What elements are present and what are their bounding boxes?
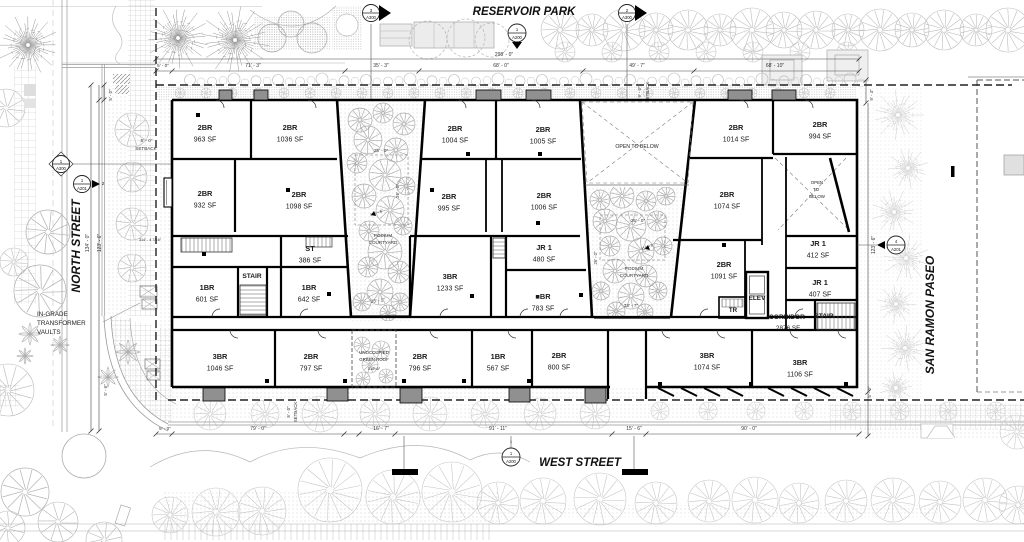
svg-text:25′ - 0″: 25′ - 0″	[631, 218, 646, 223]
svg-text:PODIUM: PODIUM	[374, 233, 393, 238]
svg-text:963 SF: 963 SF	[194, 137, 217, 144]
svg-text:797 SF: 797 SF	[300, 366, 323, 373]
svg-text:2BR: 2BR	[537, 191, 552, 200]
svg-text:1BR: 1BR	[200, 283, 215, 292]
svg-text:5′ - 0″: 5′ - 0″	[157, 63, 169, 68]
svg-text:A200: A200	[506, 459, 516, 464]
svg-text:15′ - 6″: 15′ - 6″	[626, 426, 642, 432]
svg-text:9′ - 4″: 9′ - 4″	[869, 89, 874, 101]
svg-text:5′ - 0″: 5′ - 0″	[867, 386, 872, 398]
svg-text:WEST STREET: WEST STREET	[539, 457, 622, 469]
svg-text:OPEN: OPEN	[811, 180, 823, 185]
svg-text:2BR: 2BR	[536, 125, 551, 134]
svg-text:RESERVOIR PARK: RESERVOIR PARK	[473, 6, 576, 18]
svg-text:TO: TO	[813, 187, 820, 192]
svg-text:1006 SF: 1006 SF	[531, 205, 557, 212]
svg-text:123′ - 6″: 123′ - 6″	[97, 234, 103, 253]
svg-text:SETBACK: SETBACK	[135, 146, 157, 151]
svg-text:3BR: 3BR	[443, 272, 458, 281]
svg-text:9′ - 0″: 9′ - 0″	[637, 86, 642, 98]
svg-text:NORTH STREET: NORTH STREET	[69, 198, 83, 293]
svg-text:79′ - 0″: 79′ - 0″	[250, 426, 266, 432]
svg-text:601 SF: 601 SF	[196, 297, 219, 304]
svg-text:2BR: 2BR	[304, 352, 319, 361]
svg-text:1014 SF: 1014 SF	[723, 137, 749, 144]
svg-text:567 SF: 567 SF	[487, 366, 510, 373]
svg-text:A300: A300	[366, 15, 376, 20]
svg-text:2BR: 2BR	[717, 260, 732, 269]
svg-text:25′ - 0″: 25′ - 0″	[374, 148, 389, 153]
svg-text:1004 SF: 1004 SF	[442, 138, 468, 145]
svg-text:JR 1: JR 1	[812, 278, 828, 287]
svg-text:314′ - 4 7/16″: 314′ - 4 7/16″	[139, 238, 162, 242]
svg-text:994 SF: 994 SF	[809, 134, 832, 141]
svg-text:1046 SF: 1046 SF	[207, 366, 233, 373]
svg-text:2: 2	[102, 181, 105, 186]
svg-text:2BR: 2BR	[413, 352, 428, 361]
svg-text:VAULTS: VAULTS	[37, 329, 61, 336]
svg-text:26′ - 0″: 26′ - 0″	[395, 184, 400, 198]
svg-text:COURTYARD: COURTYARD	[620, 273, 649, 278]
svg-text:90′ - 0″: 90′ - 0″	[741, 426, 757, 432]
svg-text:412 SF: 412 SF	[807, 253, 830, 260]
svg-text:68′ - 10″: 68′ - 10″	[766, 63, 785, 69]
svg-text:2BR: 2BR	[198, 123, 213, 132]
svg-text:1BR: 1BR	[302, 283, 317, 292]
svg-text:COURTYARD: COURTYARD	[369, 240, 398, 245]
svg-text:UNOCCUPIED: UNOCCUPIED	[359, 350, 389, 355]
svg-text:2BR: 2BR	[198, 189, 213, 198]
svg-text:2BR: 2BR	[729, 123, 744, 132]
svg-text:33′ - 7″: 33′ - 7″	[624, 303, 639, 308]
svg-text:796 SF: 796 SF	[409, 366, 432, 373]
svg-text:BELOW: BELOW	[809, 194, 826, 199]
svg-text:3BR: 3BR	[793, 358, 808, 367]
svg-text:1036 SF: 1036 SF	[277, 137, 303, 144]
svg-text:5′ - 0″: 5′ - 0″	[286, 406, 291, 418]
svg-text:1074 SF: 1074 SF	[694, 365, 720, 372]
svg-text:2BR: 2BR	[720, 190, 735, 199]
svg-text:26′ - 0″: 26′ - 0″	[593, 251, 598, 264]
svg-text:CORRIDOR: CORRIDOR	[769, 314, 805, 321]
svg-text:TRANSFORMER: TRANSFORMER	[37, 320, 86, 327]
svg-text:783 SF: 783 SF	[532, 306, 555, 313]
svg-text:5′ - 0″: 5′ - 0″	[108, 89, 113, 101]
svg-text:ELEV: ELEV	[749, 295, 766, 302]
svg-text:407 SF: 407 SF	[809, 292, 832, 299]
svg-text:1098 SF: 1098 SF	[286, 204, 312, 211]
svg-text:16′ - 7″: 16′ - 7″	[373, 426, 389, 432]
svg-text:2BR: 2BR	[552, 351, 567, 360]
svg-text:1BR: 1BR	[491, 352, 506, 361]
svg-text:2876 SF: 2876 SF	[776, 325, 800, 332]
svg-text:480 SF: 480 SF	[533, 257, 556, 264]
svg-text:1074 SF: 1074 SF	[714, 204, 740, 211]
svg-text:134′ - 0″: 134′ - 0″	[85, 234, 91, 253]
svg-text:3BR: 3BR	[213, 352, 228, 361]
svg-text:■BR: ■BR	[535, 292, 551, 301]
svg-text:2BR: 2BR	[283, 123, 298, 132]
svg-text:5′ - 0″: 5′ - 0″	[159, 426, 171, 431]
svg-text:3BR: 3BR	[700, 351, 715, 360]
svg-text:IN-GRADE: IN-GRADE	[37, 311, 68, 318]
svg-text:2BR: 2BR	[813, 120, 828, 129]
svg-text:2BR: 2BR	[292, 190, 307, 199]
svg-text:2BR: 2BR	[448, 124, 463, 133]
svg-text:298′ - 0″: 298′ - 0″	[495, 52, 514, 58]
svg-text:642 SF: 642 SF	[298, 297, 321, 304]
svg-text:932 SF: 932 SF	[194, 203, 217, 210]
svg-text:OPEN TO BELOW: OPEN TO BELOW	[615, 144, 658, 150]
svg-text:STAIR: STAIR	[814, 313, 834, 320]
svg-text:1091 SF: 1091 SF	[711, 274, 737, 281]
svg-text:A201: A201	[891, 247, 901, 252]
svg-text:35′ - 3″: 35′ - 3″	[373, 63, 389, 69]
svg-text:1233 SF: 1233 SF	[437, 286, 463, 293]
svg-text:71′ - 3″: 71′ - 3″	[245, 63, 261, 69]
svg-text:91′ - 11″: 91′ - 11″	[489, 426, 507, 432]
svg-text:995 SF: 995 SF	[438, 206, 461, 213]
svg-text:STAIR: STAIR	[242, 273, 262, 280]
svg-text:JR 1: JR 1	[536, 243, 552, 252]
svg-text:800 SF: 800 SF	[548, 365, 571, 372]
svg-text:JR 1: JR 1	[810, 239, 826, 248]
svg-text:A200: A200	[512, 35, 522, 40]
svg-text:316′-6″: 316′-6″	[368, 366, 381, 371]
svg-text:A300: A300	[56, 166, 66, 171]
svg-text:SAN RAMON PASEO: SAN RAMON PASEO	[923, 255, 937, 374]
svg-text:386 SF: 386 SF	[299, 258, 322, 265]
svg-text:GREEN ROOF: GREEN ROOF	[359, 357, 389, 362]
svg-text:PODIUM: PODIUM	[625, 266, 644, 271]
svg-text:A300: A300	[622, 15, 632, 20]
svg-text:2BR: 2BR	[442, 192, 457, 201]
svg-text:1106 SF: 1106 SF	[787, 372, 813, 379]
svg-text:A201: A201	[77, 186, 87, 191]
svg-text:ST: ST	[305, 244, 315, 253]
svg-text:.5′ - 0″: .5′ - 0″	[140, 138, 153, 143]
svg-text:TR: TR	[729, 307, 738, 314]
svg-text:1005 SF: 1005 SF	[530, 139, 556, 146]
svg-text:SETBACK: SETBACK	[293, 402, 298, 423]
svg-text:49′ - 7″: 49′ - 7″	[629, 63, 645, 69]
svg-text:68′ - 0″: 68′ - 0″	[493, 63, 509, 69]
svg-text:5′ - 6″: 5′ - 6″	[103, 384, 108, 396]
